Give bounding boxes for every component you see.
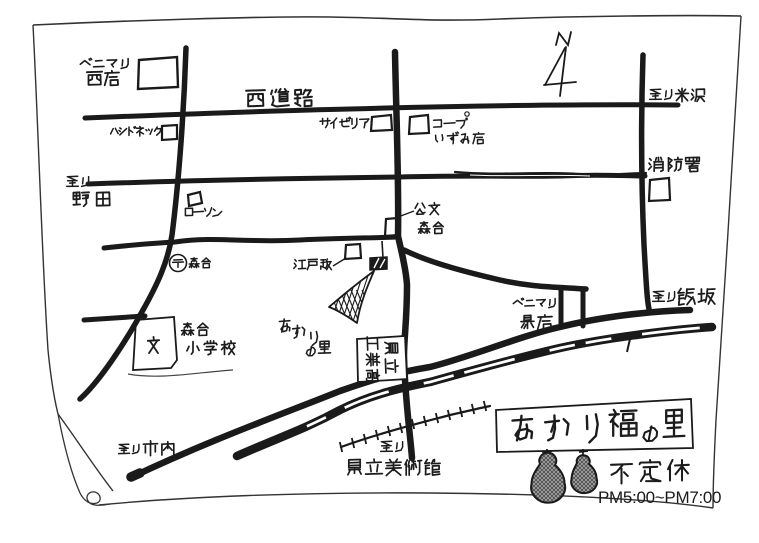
svg-text:PM5:00~PM7:00: PM5:00~PM7:00 bbox=[598, 488, 721, 507]
